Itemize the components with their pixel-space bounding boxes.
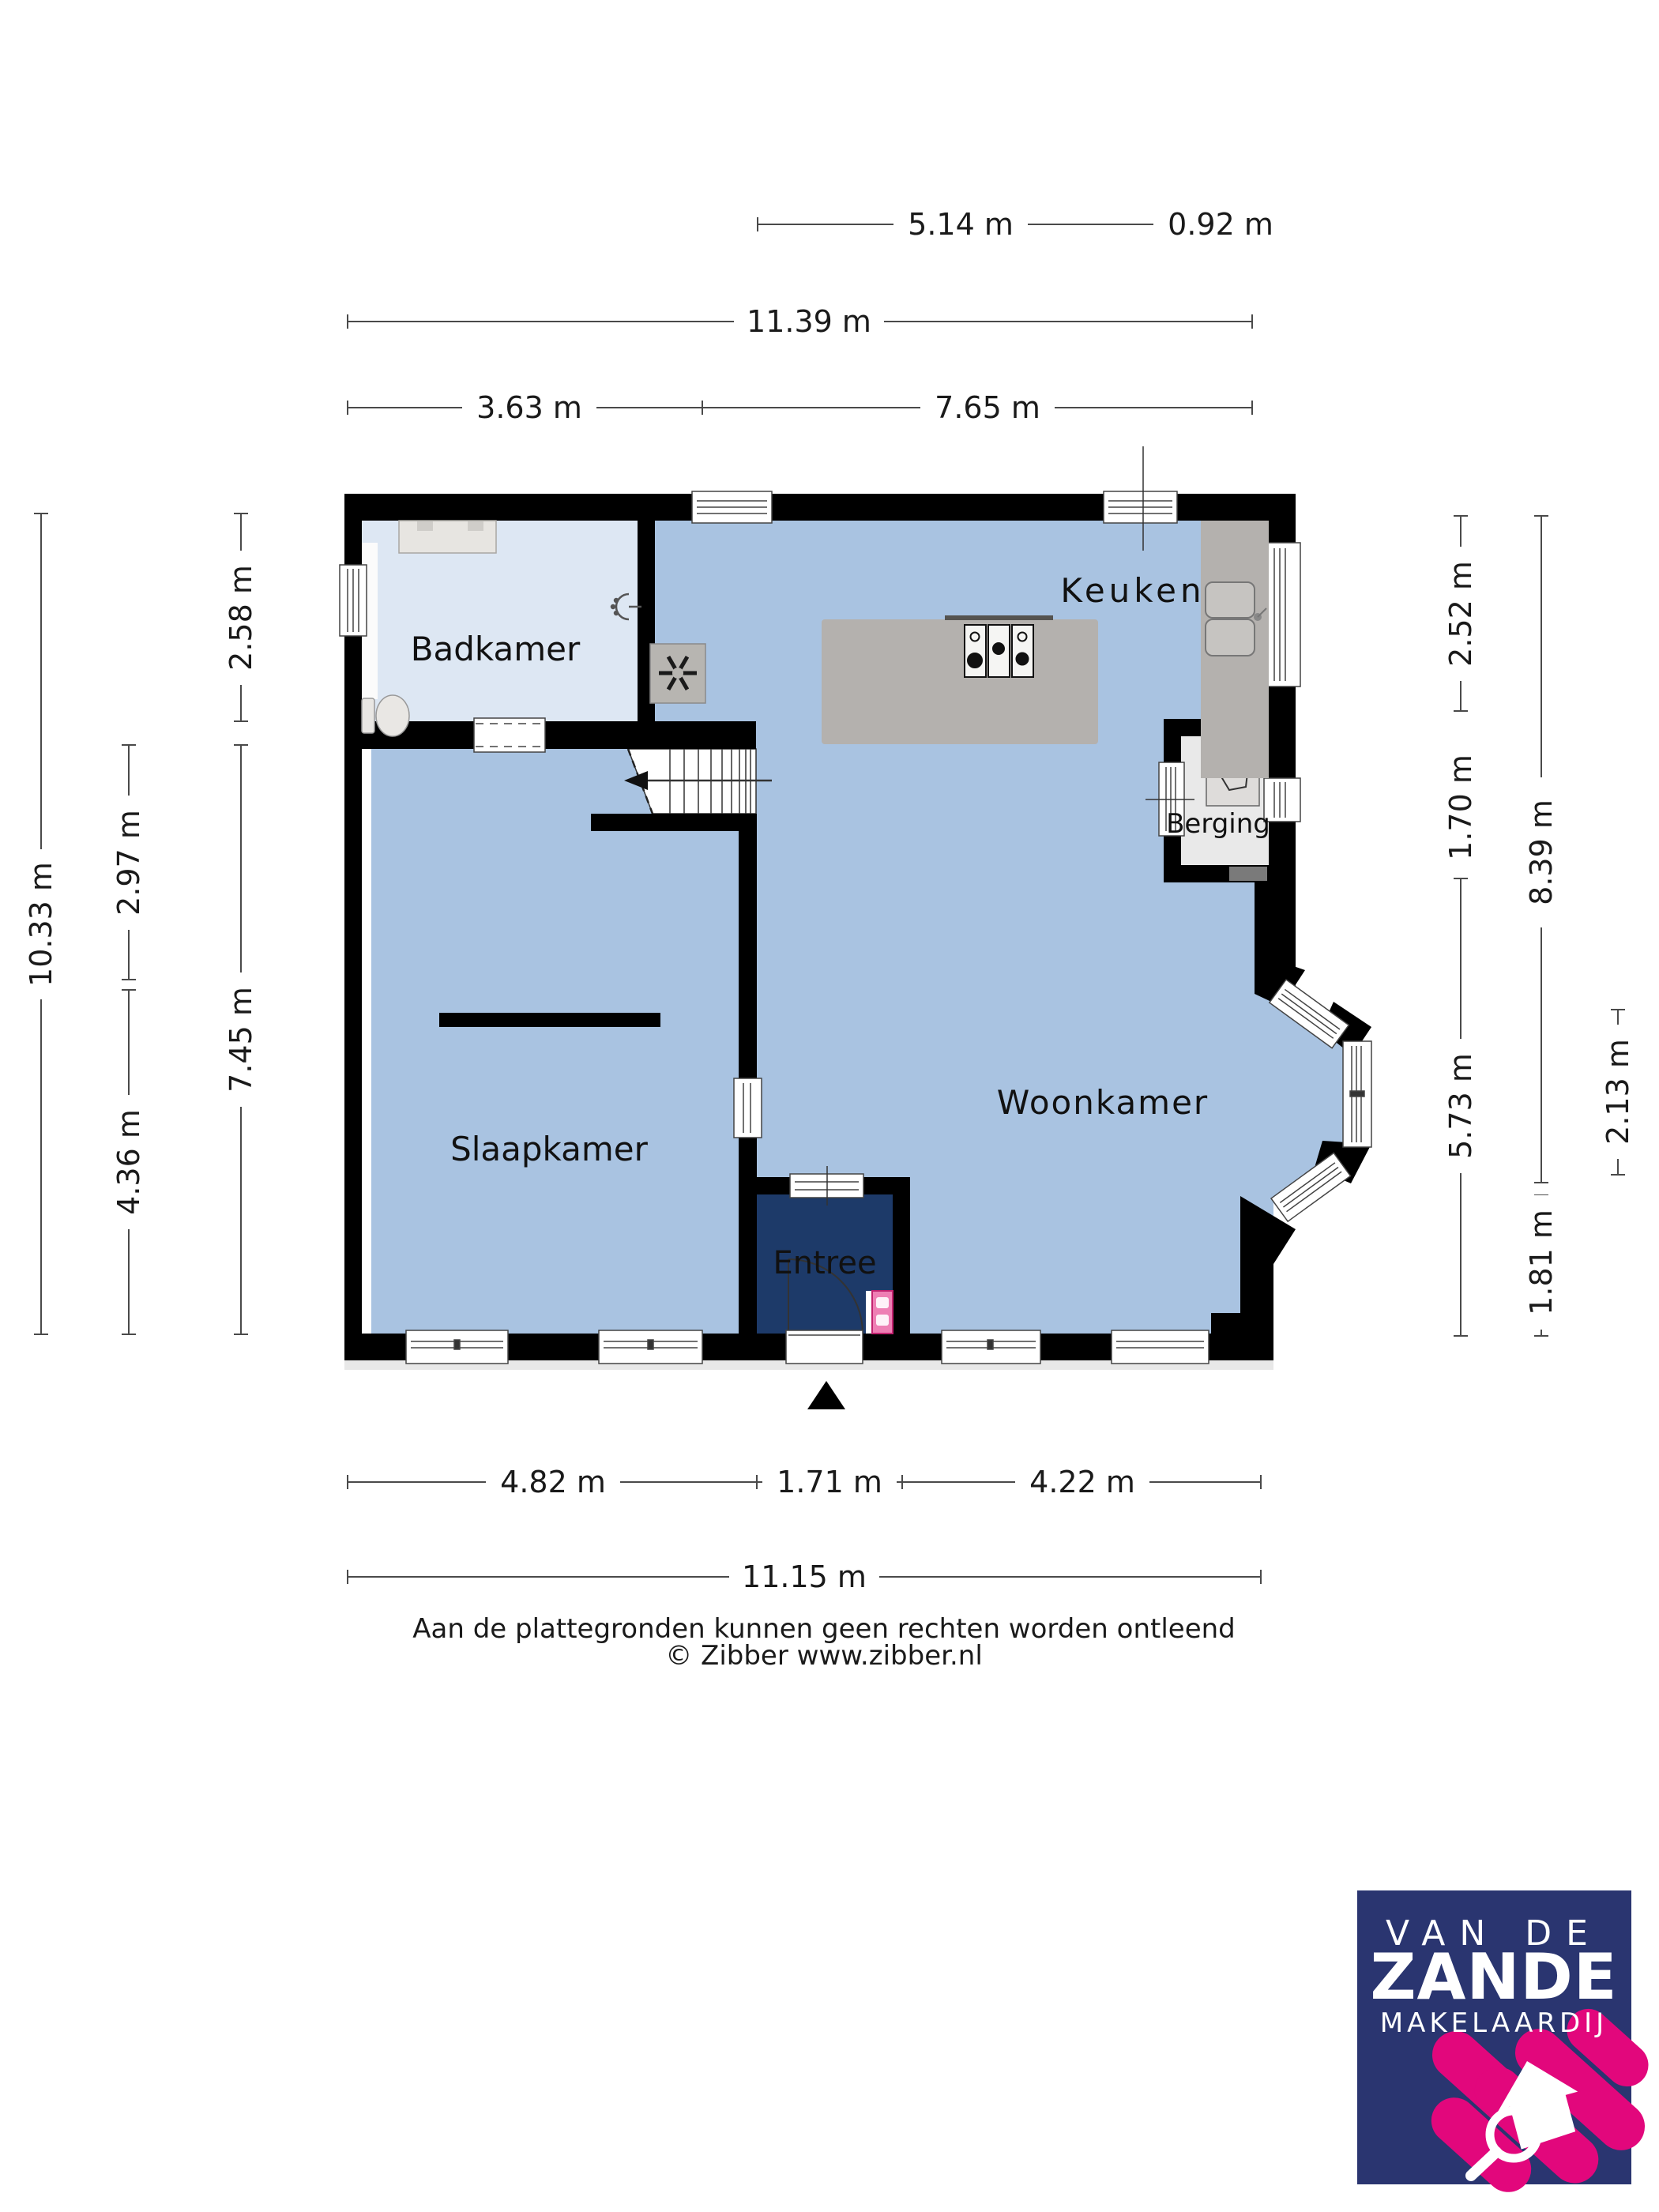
logo-line3: MAKELAARDIJ — [1380, 2007, 1608, 2039]
front-door-opening — [786, 1330, 863, 1364]
window — [340, 565, 367, 636]
window — [1264, 543, 1300, 687]
dim-keuken-height: 2.52 m — [1443, 561, 1478, 667]
dim-berging-height: 1.70 m — [1443, 754, 1478, 860]
meter-cupboard — [866, 1291, 893, 1334]
gas-hob-icon — [965, 625, 1033, 677]
dim-mid-upper: 2.97 m — [111, 810, 146, 916]
dim-bay-height: 2.13 m — [1601, 1039, 1635, 1145]
dim-woonkamer-height: 5.73 m — [1443, 1053, 1478, 1159]
dim-woonkamer-width: 4.22 m — [1029, 1465, 1135, 1499]
window — [599, 1330, 702, 1364]
storage-doorstep — [1229, 867, 1267, 881]
mechanical-ventilation-icon — [650, 644, 705, 703]
room-label-berging: Berging — [1166, 808, 1270, 840]
dim-right-total: 8.39 m — [1524, 799, 1559, 905]
bay-window-middle — [1343, 1041, 1371, 1147]
vanity — [399, 521, 496, 553]
toilet-icon — [362, 695, 409, 736]
dim-keuken-extra: 0.92 m — [1168, 207, 1273, 242]
window — [1104, 491, 1177, 523]
dim-living-width: 7.65 m — [935, 390, 1040, 425]
dim-badkamer-height: 2.58 m — [224, 565, 258, 671]
logo-line2: ZANDE — [1371, 1940, 1618, 2014]
dim-mid-lower: 4.36 m — [111, 1109, 146, 1215]
kitchen-island — [822, 619, 1098, 744]
window — [406, 1330, 508, 1364]
dim-keuken-width: 5.14 m — [908, 207, 1014, 242]
page: Badkamer Keuken Berging Slaapkamer Woonk… — [0, 0, 1659, 2212]
window — [942, 1330, 1040, 1364]
dim-badkamer-width: 3.63 m — [476, 390, 582, 425]
room-label-keuken: Keuken — [1060, 571, 1205, 610]
window — [1112, 1330, 1209, 1364]
dim-total-width-bottom: 11.15 m — [742, 1559, 867, 1594]
dim-right-lower: 1.81 m — [1524, 1209, 1559, 1315]
dim-slaapkamer-width: 4.82 m — [500, 1465, 606, 1499]
window — [692, 491, 772, 523]
floor-plan: Badkamer Keuken Berging Slaapkamer Woonk… — [0, 0, 1659, 2212]
dim-slaapkamer-height: 7.45 m — [224, 987, 258, 1093]
entrance-triangle-marker — [807, 1381, 845, 1409]
dim-entree-width: 1.71 m — [777, 1465, 882, 1499]
room-label-slaapkamer: Slaapkamer — [450, 1130, 649, 1168]
glazed-door — [734, 1078, 762, 1138]
room-label-badkamer: Badkamer — [411, 630, 581, 668]
room-label-woonkamer: Woonkamer — [997, 1083, 1209, 1122]
dim-total-width-top: 11.39 m — [747, 304, 871, 339]
agency-logo: VAN DE ZANDE MAKELAARDIJ — [1357, 1890, 1657, 2202]
room-label-entree: Entree — [773, 1245, 876, 1281]
bathroom-door-opening — [474, 718, 545, 752]
footer-credit: © Zibber www.zibber.nl — [665, 1640, 983, 1672]
dim-total-height: 10.33 m — [24, 862, 58, 987]
